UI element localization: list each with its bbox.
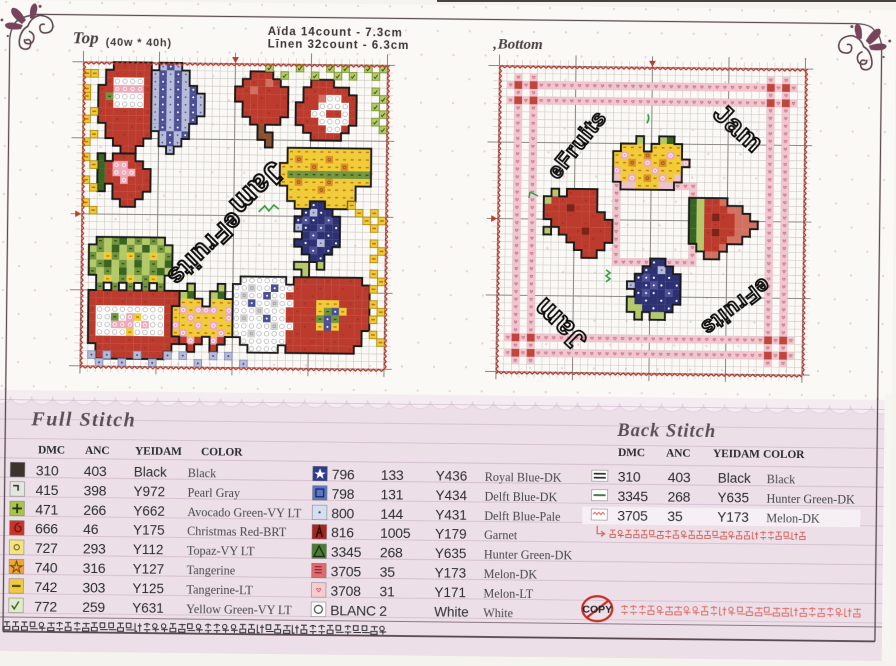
svg-text:310: 310 [618,468,641,484]
svg-text:Black: Black [188,466,217,480]
svg-text:798: 798 [331,486,354,502]
svg-text:131: 131 [380,486,403,502]
svg-text:Y635: Y635 [717,490,749,505]
svg-text:Melon-DK: Melon-DK [766,511,820,526]
svg-text:Garnet: Garnet [484,528,518,542]
svg-text:Black: Black [767,472,796,486]
svg-text:316: 316 [83,560,106,576]
svg-text:144: 144 [380,506,403,522]
svg-text:Y175: Y175 [133,523,165,538]
svg-text:Y173: Y173 [435,565,467,580]
svg-text:Hunter Green-DK: Hunter Green-DK [766,492,855,507]
svg-text:COLOR: COLOR [763,449,805,461]
svg-text:Black: Black [718,471,751,486]
svg-text:COLOR: COLOR [201,446,243,458]
svg-text:Delft Blue-DK: Delft Blue-DK [484,489,557,504]
svg-text:796: 796 [332,466,355,482]
svg-text:Y431: Y431 [435,507,467,522]
svg-text:YEIDAM: YEIDAM [713,448,760,461]
svg-text:Melon-LT: Melon-LT [483,586,533,601]
svg-text:Christmas Red-BRT: Christmas Red-BRT [187,524,287,539]
svg-text:Pearl Gray: Pearl Gray [187,485,241,500]
svg-text:DMC: DMC [618,447,645,459]
svg-text:259: 259 [82,599,105,615]
svg-text:293: 293 [83,540,106,556]
svg-text:3705: 3705 [617,507,648,523]
svg-text:Aïda 14count - 7.3cm: Aïda 14count - 7.3cm [268,26,403,40]
svg-text:268: 268 [380,544,403,560]
svg-text:35: 35 [667,508,683,524]
svg-text:Tangerine: Tangerine [187,563,236,578]
svg-text:1005: 1005 [380,525,411,541]
svg-text:3708: 3708 [330,583,361,599]
svg-text:Melon-DK: Melon-DK [484,567,538,582]
svg-text:YEIDAM: YEIDAM [135,445,182,458]
svg-text:772: 772 [34,598,57,614]
svg-text:800: 800 [331,505,354,521]
svg-text:Tangerine-LT: Tangerine-LT [186,582,253,597]
svg-text:Y171: Y171 [434,585,466,600]
svg-text:Y972: Y972 [133,484,165,499]
svg-text:46: 46 [83,521,99,537]
svg-text:ANC: ANC [85,445,109,457]
svg-text:Avocado Green-VY LT: Avocado Green-VY LT [187,505,302,520]
svg-text:COPY: COPY [582,604,612,616]
svg-text:Back Stitch: Back Stitch [616,421,716,442]
svg-text:3345: 3345 [331,544,362,560]
svg-text:133: 133 [381,467,404,483]
svg-text:BLANC: BLANC [330,602,376,619]
svg-text:268: 268 [667,488,690,504]
svg-text:3705: 3705 [331,563,362,579]
svg-text:727: 727 [35,540,58,556]
svg-text:Līnen 32count - 6.3cm: Līnen 32count - 6.3cm [268,38,410,52]
svg-text:Royal Blue-DK: Royal Blue-DK [485,470,562,485]
svg-text:31: 31 [379,583,395,599]
svg-text:3345: 3345 [617,488,648,504]
svg-text:Black: Black [134,464,167,479]
svg-text:Delft Blue-Pale: Delft Blue-Pale [484,509,560,524]
svg-text:Full Stitch: Full Stitch [30,408,136,431]
svg-text:Y635: Y635 [435,546,467,561]
svg-text:266: 266 [83,502,106,518]
svg-text:Y662: Y662 [133,503,165,518]
svg-text:DMC: DMC [38,444,65,456]
svg-text:Y125: Y125 [132,581,164,596]
svg-text:White: White [483,606,513,620]
svg-text:471: 471 [35,501,58,517]
svg-text:Y436: Y436 [436,468,468,483]
svg-text:Hunter Green-DK: Hunter Green-DK [484,548,573,563]
svg-text:White: White [434,604,469,619]
svg-text:35: 35 [380,564,396,580]
svg-text:Topaz-VY LT: Topaz-VY LT [187,544,255,559]
svg-text:(40w * 40h): (40w * 40h) [106,37,172,50]
svg-text:Y179: Y179 [435,527,467,542]
svg-text:742: 742 [34,579,57,595]
svg-text:Y631: Y631 [132,600,164,615]
svg-text:Yellow Green-VY LT: Yellow Green-VY LT [186,602,292,617]
svg-text:310: 310 [36,462,59,478]
svg-text:403: 403 [84,463,107,479]
svg-text:666: 666 [35,521,58,537]
svg-text:Top: Top [73,28,99,47]
svg-text:398: 398 [83,482,106,498]
svg-text:Y112: Y112 [133,542,164,557]
svg-text:403: 403 [668,469,691,485]
svg-text:415: 415 [35,482,58,498]
svg-text:2: 2 [379,603,387,619]
svg-text:ANC: ANC [666,448,690,460]
svg-text:Y173: Y173 [717,509,749,524]
svg-text:Y127: Y127 [133,561,165,576]
svg-text:816: 816 [331,524,354,540]
svg-text:303: 303 [82,579,105,595]
svg-text:‚Bottom: ‚Bottom [493,37,543,54]
svg-text:Y434: Y434 [435,488,467,503]
svg-text:740: 740 [35,559,58,575]
